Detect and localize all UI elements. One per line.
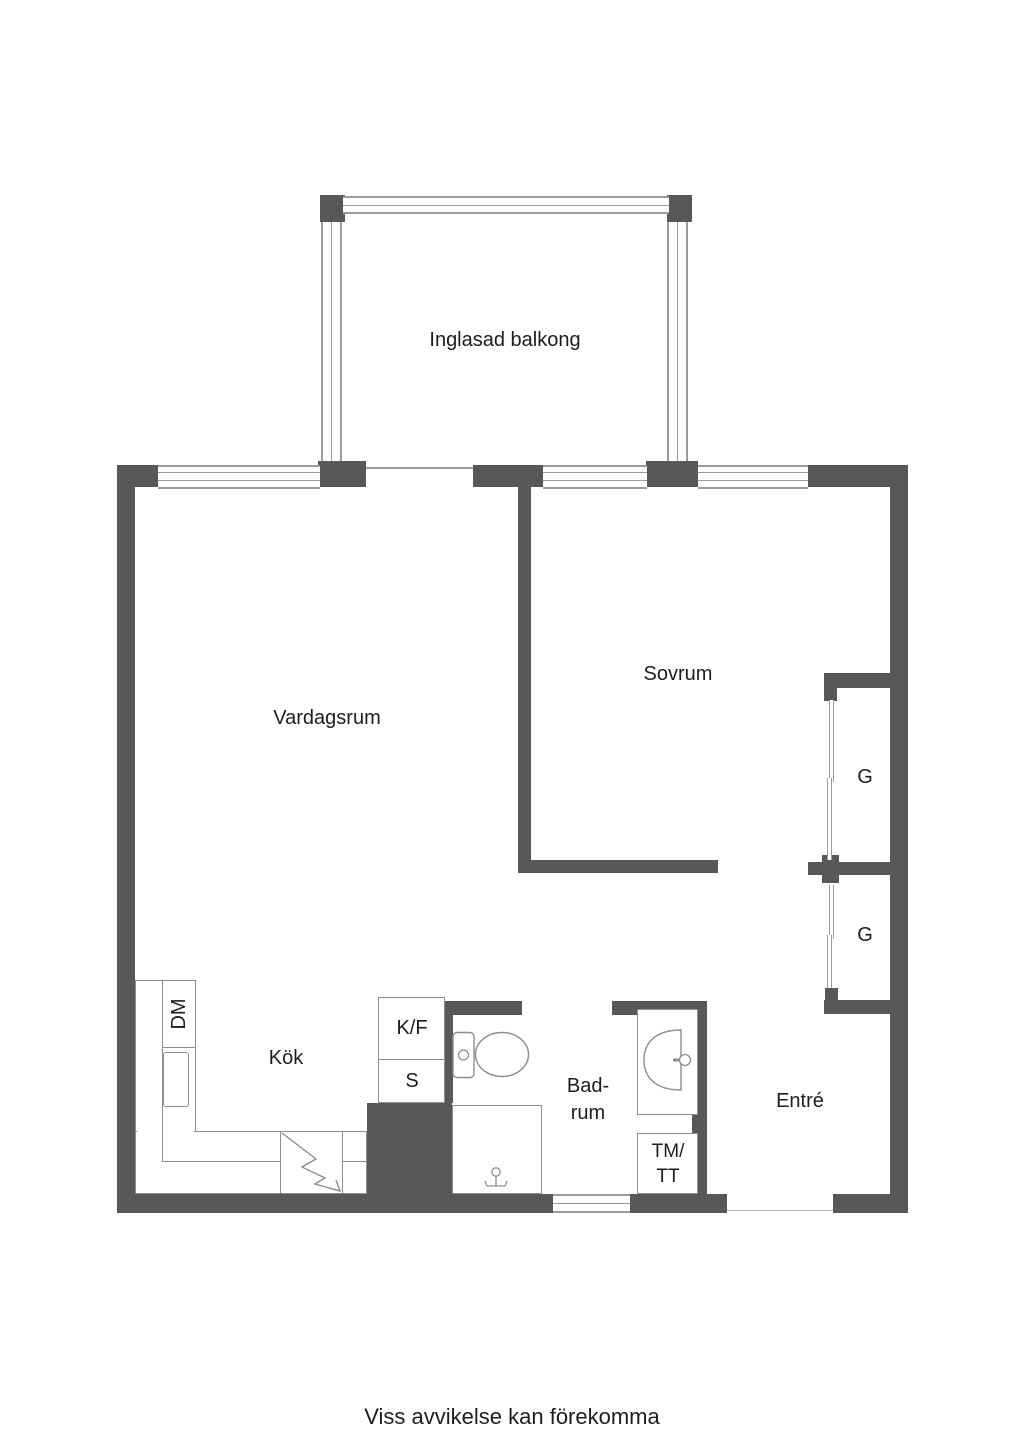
balcony-post-top-left (320, 195, 345, 222)
wall-closet-bottom-stub (824, 1000, 890, 1014)
wall-bedroom-bottom (518, 860, 718, 873)
shower-icon (482, 1166, 510, 1193)
window-top-2 (543, 465, 647, 489)
closet-bottom-door-leaf-1 (829, 885, 834, 939)
stove-lightning-icon (281, 1132, 342, 1193)
closet-bottom-door-leaf-2 (827, 935, 832, 988)
window-top-1 (158, 465, 320, 489)
label-entry: Entré (776, 1088, 824, 1114)
label-bathroom: Bad- rum (567, 1073, 609, 1127)
balcony-post-bottom-right (646, 461, 698, 487)
label-fridge-freezer: K/F (396, 1015, 427, 1041)
wall-exterior-left (117, 465, 135, 1213)
wall-exterior-right (890, 465, 908, 1213)
bathroom-sink-icon (637, 1009, 698, 1115)
wall-top-right-segment (808, 465, 908, 487)
closet-top-door-leaf-2 (827, 778, 832, 860)
wall-top-pier-center (473, 465, 543, 487)
balcony-post-bottom-left (318, 461, 366, 487)
wall-bottom-left-segment (117, 1194, 553, 1213)
label-balcony: Inglasad balkong (429, 327, 580, 353)
wall-closet-top-stub (824, 673, 890, 688)
counter-inner-hline-1 (163, 1161, 281, 1162)
label-kitchen: Kök (269, 1045, 303, 1071)
toilet-icon (451, 1030, 531, 1080)
counter-inner-vline (162, 1048, 163, 1162)
floor-plan: Inglasad balkong G G (0, 0, 1024, 1448)
duct-shaft-block (367, 1103, 452, 1194)
balcony-post-top-right (667, 195, 692, 222)
label-bedroom: Sovrum (644, 661, 713, 687)
entry-door-threshold (727, 1210, 833, 1211)
balcony-glazing-left (321, 222, 342, 462)
wall-bottom-right-segment (833, 1194, 908, 1213)
label-wardrobe-top: G (857, 764, 873, 790)
wall-living-bedroom-divider (518, 487, 531, 862)
label-pantry: S (405, 1068, 418, 1094)
kitchen-sink (163, 1052, 189, 1107)
counter-join-patch (137, 1130, 194, 1133)
balcony-glazing-right (667, 222, 688, 462)
wall-closet-middle-bar (808, 862, 890, 875)
window-top-3 (698, 465, 808, 489)
closet-top-door-leaf-1 (829, 700, 834, 782)
wall-top-pier-corner (117, 465, 158, 487)
counter-inner-hline-2 (343, 1161, 367, 1162)
balcony-glazing-top (343, 196, 669, 214)
label-washer-dryer: TM/ TT (652, 1139, 685, 1189)
balcony-door-threshold (366, 467, 473, 469)
window-bottom-bathroom (553, 1194, 630, 1213)
label-wardrobe-bottom: G (857, 922, 873, 948)
wall-bottom-middle-segment (630, 1194, 727, 1213)
disclaimer-text: Viss avvikelse kan förekomma (364, 1404, 660, 1430)
label-living-room: Vardagsrum (273, 705, 380, 731)
label-dishwasher: DM (166, 998, 192, 1029)
